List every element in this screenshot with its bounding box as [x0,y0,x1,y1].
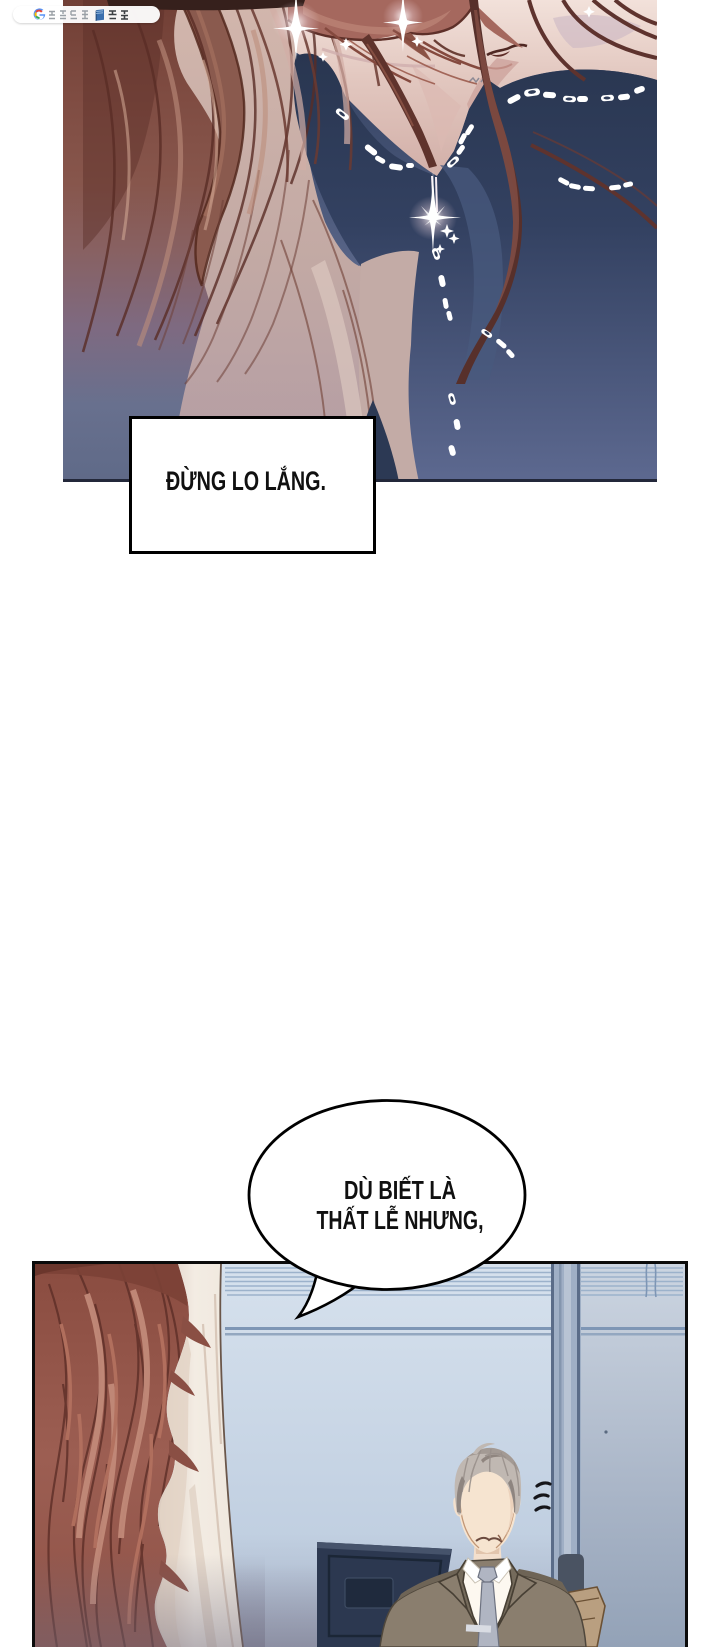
svg-text:ĐỪNG LO LẮNG.: ĐỪNG LO LẮNG. [166,465,326,496]
svg-text:THẤT LỄ NHƯNG,: THẤT LỄ NHƯNG, [317,1205,484,1235]
svg-text:DÙ BIẾT LÀ: DÙ BIẾT LÀ [344,1175,456,1205]
